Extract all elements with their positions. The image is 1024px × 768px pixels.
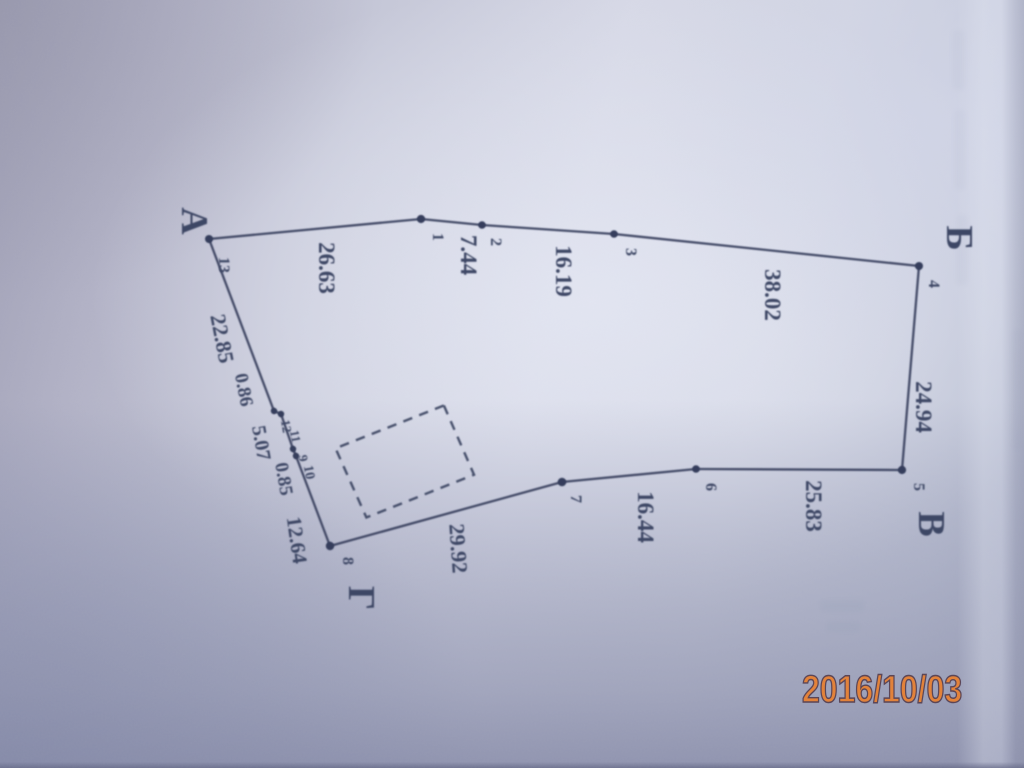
svg-text:29.92: 29.92 — [444, 523, 472, 574]
svg-text:10: 10 — [300, 464, 317, 480]
svg-text:8: 8 — [339, 557, 356, 565]
svg-text:3: 3 — [622, 248, 639, 256]
svg-text:24.94: 24.94 — [911, 381, 936, 433]
svg-text:16.19: 16.19 — [551, 245, 576, 297]
svg-text:11: 11 — [287, 429, 304, 444]
svg-text:2: 2 — [487, 238, 504, 246]
svg-text:В: В — [910, 511, 952, 536]
svg-text:16.44: 16.44 — [633, 491, 658, 543]
svg-text:25.83: 25.83 — [801, 480, 826, 532]
svg-text:4: 4 — [925, 280, 942, 288]
svg-text:6: 6 — [702, 483, 719, 491]
svg-text:Г: Г — [340, 586, 382, 610]
svg-text:13: 13 — [215, 257, 232, 273]
svg-text:7: 7 — [567, 495, 584, 503]
svg-text:26.63: 26.63 — [314, 242, 339, 294]
svg-text:Б: Б — [938, 225, 980, 250]
svg-text:1: 1 — [429, 233, 446, 241]
svg-text:38.02: 38.02 — [760, 269, 785, 321]
svg-text:А: А — [173, 207, 215, 235]
svg-text:7.44: 7.44 — [456, 235, 481, 276]
svg-text:5: 5 — [910, 483, 927, 491]
